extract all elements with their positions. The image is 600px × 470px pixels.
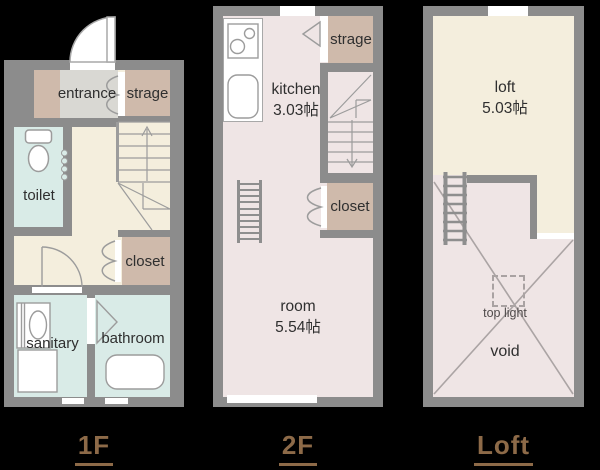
f1-entrance-label: entrance [50, 85, 124, 102]
f1-wall-below-entrance [14, 118, 118, 127]
loft-void-v-wall [530, 175, 537, 239]
floor-title-2f: 2F [279, 430, 317, 466]
loft-top-window [488, 6, 528, 16]
void-label: void [470, 343, 540, 361]
loft-void-h-wall [467, 175, 537, 183]
loft-room-label: loft 5.03帖 [460, 77, 550, 119]
f2-kitchen-label: kitchen 3.03帖 [251, 79, 341, 121]
f1-toilet-bottom-wall [14, 227, 72, 236]
f1-wall-above-closet [118, 230, 170, 237]
floor-title-loft: Loft [474, 430, 533, 466]
f2-bottom-window [227, 395, 317, 403]
loft-name: loft [460, 77, 550, 98]
floorplan-canvas: entrance strage toilet closet sanitary b… [0, 0, 600, 470]
top-light-label: top light [470, 306, 540, 320]
f2-wall-below-closet [320, 230, 373, 238]
loft-opening-strip [537, 233, 574, 239]
f2-kitchen-area: 3.03帖 [251, 100, 341, 121]
f2-wall-above-closet [320, 173, 373, 183]
floor-title-loft-wrap: Loft [423, 430, 584, 466]
f1-entrance-door-gap [70, 61, 115, 70]
f1-toilet-label: toilet [14, 187, 64, 204]
floor-title-2f-wrap: 2F [213, 430, 383, 466]
f1-sanitary-label: sanitary [14, 335, 91, 352]
f2-room-name: room [253, 296, 343, 317]
top-light-outline [492, 275, 525, 307]
entrance-door-leaf-icon [107, 17, 115, 62]
f2-strage-label: strage [324, 31, 378, 48]
f2-room-label: room 5.54帖 [253, 296, 343, 338]
f1-toilet-right-wall [63, 127, 72, 236]
f1-bathroom-window [105, 398, 128, 404]
f2-top-window [280, 6, 315, 16]
f1-wall-below-strage [118, 116, 170, 122]
f1-sanitary-window [62, 398, 84, 404]
floor-title-1f: 1F [75, 430, 113, 466]
f2-room-area: 5.54帖 [253, 317, 343, 338]
entrance-door-swing-icon [70, 17, 115, 62]
f1-closet-label: closet [119, 253, 171, 270]
f1-bathroom-label: bathroom [95, 330, 171, 347]
f2-closet-label: closet [323, 198, 377, 215]
f2-kitchen-name: kitchen [251, 79, 341, 100]
loft-area: 5.03帖 [460, 98, 550, 119]
loft-room-extension [537, 175, 574, 233]
f1-toilet-room [14, 127, 63, 227]
f1-hall-door-gap [32, 287, 82, 293]
f1-strage-label: strage [120, 85, 175, 102]
floor-title-1f-wrap: 1F [4, 430, 184, 466]
